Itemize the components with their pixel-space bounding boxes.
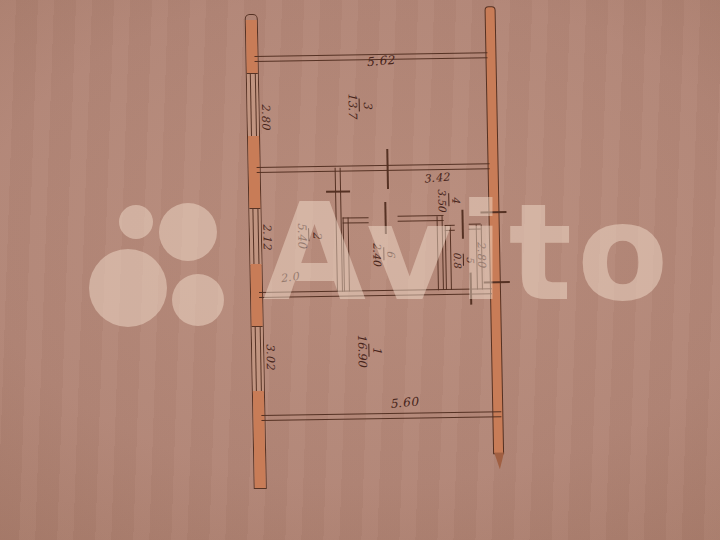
wall-tick [480,211,506,213]
corridor-bottom-wall [259,288,492,298]
wall-segment [246,20,258,73]
room5-top-wall [445,225,455,231]
window-symbol-upper [247,73,259,138]
room-area: 13.7 [345,93,359,119]
window-symbol-lower [252,326,264,393]
room-area: 5.40 [294,222,308,248]
dim-left-lower: 3.02 [263,343,277,370]
room-area: 2.40 [371,242,384,266]
room-label-6: 6 2.40 [371,242,398,266]
door-tick [384,202,386,234]
room-area: 3.50 [436,188,449,212]
door-tick [470,273,472,305]
room6-left-wall [343,218,350,292]
wall-tick [484,281,510,283]
room-label-4: 4 3.50 [436,188,463,212]
room-area: 0.8 [451,252,463,268]
door-tick [461,210,463,239]
right-wall-taper [494,452,504,469]
room6-right-wall [437,216,444,290]
room2-partition [335,168,343,292]
floor-plan-drawing: 5.62 3.42 2.0 5.60 2.80 2.12 3.02 2.80 3… [0,0,720,540]
room3-divider-wall [257,163,490,173]
room-label-3: 3 13.7 [345,92,374,118]
dim-left-upper: 2.80 [259,103,273,130]
room-label-2: 2 5.40 [294,222,323,248]
dim-right: 2.80 [475,241,489,268]
room-number: 6 [384,247,398,260]
dim-corridor: 2.0 [279,270,300,285]
room6-top-wall [343,217,369,223]
room-number: 4 [449,193,463,206]
dim-bottom: 5.60 [389,395,419,411]
bottom-wall [261,411,501,421]
dim-left-middle: 2.12 [260,223,274,250]
door-tick [326,190,350,192]
room-number: 5 [463,253,476,266]
floorplan-photo: 5.62 3.42 2.0 5.60 2.80 2.12 3.02 2.80 3… [0,0,720,540]
room-area: 16.90 [355,334,369,367]
room-number: 1 [368,343,383,357]
right-exterior-wall [485,6,505,454]
room-number: 3 [359,98,374,112]
room-label-5: 5 0.8 [451,252,476,268]
room-label-1: 1 16.90 [355,334,384,367]
room-number: 2 [308,228,323,242]
dim-middle: 3.42 [423,171,451,186]
wall-segment [253,391,266,488]
dim-top: 5.62 [366,53,396,69]
